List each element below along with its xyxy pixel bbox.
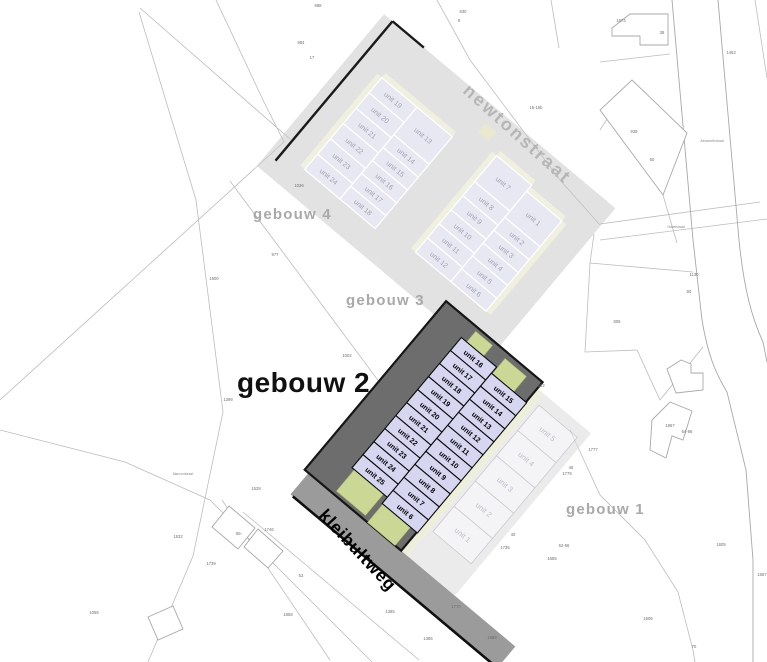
- parcel-number: 1002: [342, 353, 352, 358]
- parcel-number: 55-: [236, 531, 243, 536]
- parcel-number: 1532: [173, 534, 183, 539]
- parcel-number: 888: [315, 3, 323, 8]
- parcel-number: 1574: [616, 18, 626, 23]
- parcel-number: 46: [569, 465, 574, 470]
- parcel-number: 50: [650, 157, 655, 162]
- parcel-number: 64-66: [682, 429, 693, 434]
- parcel-number: 1770: [451, 604, 461, 609]
- parcel-number: 806: [614, 319, 622, 324]
- parcel-number: 977: [272, 252, 280, 257]
- gebouw2-label: gebouw 2: [237, 367, 370, 398]
- map-canvas: unit 19unit 20unit 21unit 22unit 23unit …: [0, 0, 767, 662]
- parcel-number: 1605: [716, 542, 726, 547]
- parcel-number: 830: [460, 9, 468, 14]
- parcel-number: 884: [298, 40, 306, 45]
- parcel-number: 52-56: [559, 543, 570, 548]
- parcel-number: 1777: [588, 447, 598, 452]
- parcel-number: 1779: [562, 471, 572, 476]
- parcel-number: 1399: [223, 397, 233, 402]
- parcel-number: 1058: [89, 610, 99, 615]
- minor-street-label: Nobelstraat: [667, 225, 684, 229]
- minor-street-label: Ainsworthstraat: [700, 139, 723, 143]
- parcel-number: 1528: [251, 486, 261, 491]
- parcel-number: 1689: [487, 635, 497, 640]
- parcel-number: 70: [692, 644, 697, 649]
- gebouw4-label: gebouw 4: [253, 206, 332, 223]
- parcel-number: 1739: [206, 561, 216, 566]
- parcel-number: 1685: [547, 556, 557, 561]
- parcel-number: 1026: [294, 183, 304, 188]
- parcel-number: 1386: [423, 636, 433, 641]
- parcel-number: 939: [631, 129, 639, 134]
- gebouw3-label: gebouw 3: [346, 292, 425, 309]
- parcel-number: 1385: [385, 609, 395, 614]
- parcel-number: 53: [299, 573, 304, 578]
- parcel-number: 60: [687, 289, 692, 294]
- parcel-number: 1463: [726, 50, 736, 55]
- parcel-number: 1858: [283, 612, 293, 617]
- parcel-number: 15-15b: [529, 105, 543, 110]
- minor-street-label: Marconistraat: [173, 472, 194, 476]
- parcel-number: 1746: [264, 527, 274, 532]
- parcel-number: 1130: [689, 272, 699, 277]
- parcel-number: 17: [310, 55, 315, 60]
- parcel-number: 1606: [643, 616, 653, 621]
- parcel-number: 1867: [665, 423, 675, 428]
- parcel-number: 1900: [209, 276, 219, 281]
- parcel-number: 1735: [500, 545, 510, 550]
- gebouw1-label: gebouw 1: [566, 501, 645, 518]
- parcel-number: 38: [660, 30, 665, 35]
- site-plan-map: unit 19unit 20unit 21unit 22unit 23unit …: [0, 0, 767, 662]
- parcel-number: 1667: [757, 572, 767, 577]
- parcel-number: 40: [511, 532, 516, 537]
- parcel-number: 1862: [535, 383, 545, 388]
